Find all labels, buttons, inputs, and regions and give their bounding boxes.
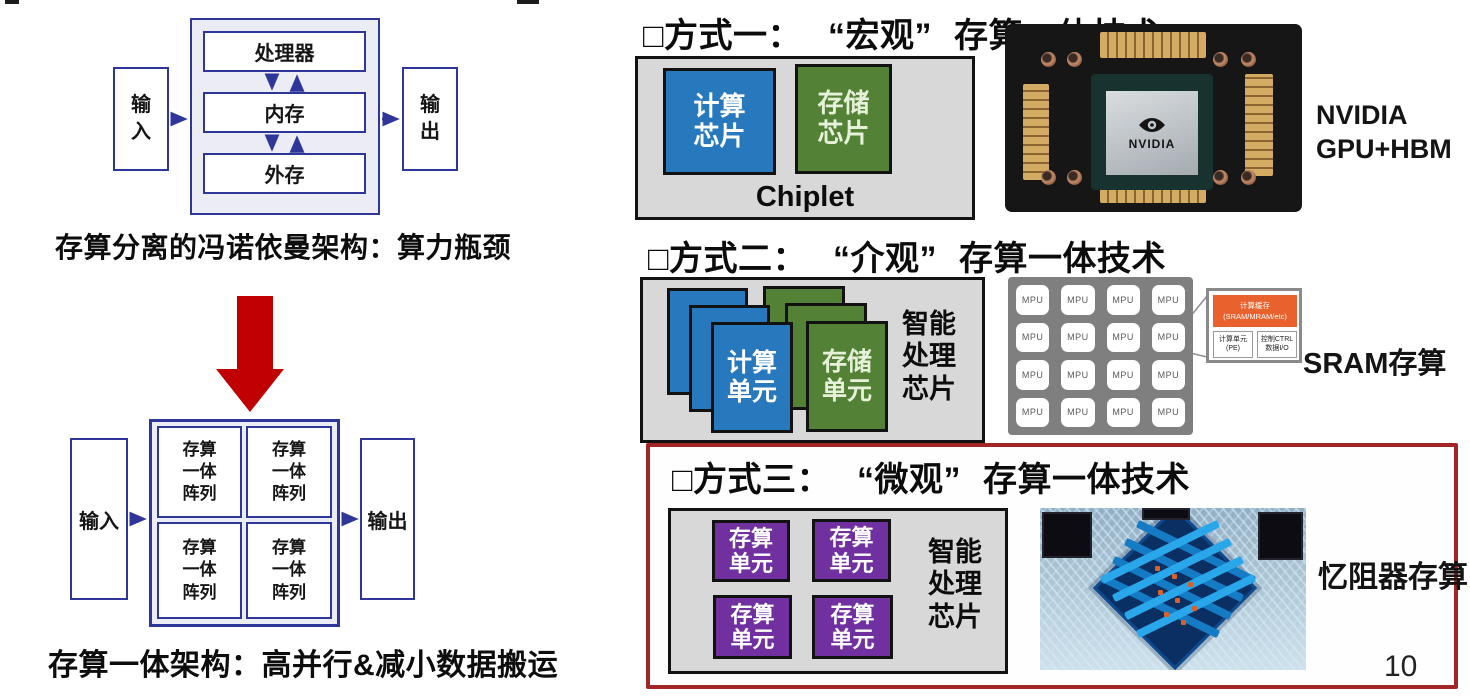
memristor-cell xyxy=(1155,566,1160,571)
mpu-cell: MPU xyxy=(1107,360,1140,390)
nvidia-gpu-photo: NVIDIA xyxy=(1005,24,1302,212)
memristor-label: 忆阻器存算 xyxy=(1318,552,1468,596)
processor-box: 处理器 xyxy=(203,31,366,72)
memory-chip-box: 存储 芯片 xyxy=(795,64,892,174)
mpu-cell: MPU xyxy=(1061,323,1094,353)
section1-bullet-label: □方式一： xyxy=(643,17,802,55)
memristor-cell xyxy=(1192,606,1197,611)
section1-scale: “宏观” xyxy=(828,17,932,55)
section2-tech: 存算一体技术 xyxy=(959,240,1166,278)
memristor-cell xyxy=(1175,598,1180,603)
mpu-callout: 计算缓存 (SRAM/MRAM/etc) 计算单元 (PE) 控制CTRL 数据… xyxy=(1206,288,1302,363)
section2-scale: “介观” xyxy=(833,240,937,278)
section2-bullet-label: □方式二： xyxy=(648,240,807,278)
mounting-hole xyxy=(1041,170,1056,185)
mounting-hole xyxy=(1041,52,1056,67)
mounting-hole xyxy=(1067,170,1082,185)
smart-chip-label-3: 智能 处理 芯片 xyxy=(928,536,982,633)
cim-caption: 存算一体架构：高并行&减小数据搬运 xyxy=(48,640,558,684)
mounting-hole xyxy=(1067,52,1082,67)
gpu-die: NVIDIA xyxy=(1106,91,1198,175)
cim-unit-box: 存算 单元 xyxy=(712,520,790,582)
sram-label: SRAM存算 xyxy=(1303,340,1446,382)
mounting-hole xyxy=(1241,52,1256,67)
chiplet-label: Chiplet xyxy=(635,181,975,214)
memristor-photo xyxy=(1040,508,1306,670)
mpu-cell: MPU xyxy=(1107,285,1140,315)
cim-input-box: 输入 xyxy=(70,438,128,600)
gold-connector xyxy=(1245,74,1273,176)
smart-chip-label-2: 智能 处理 芯片 xyxy=(902,308,956,405)
memristor-cell xyxy=(1158,590,1163,595)
memory-box: 内存 xyxy=(203,92,366,133)
cim-unit-box: 存算 单元 xyxy=(713,595,792,659)
mpu-cell: MPU xyxy=(1016,398,1049,428)
cim-output-box: 输出 xyxy=(360,438,415,600)
section3-heading: □方式三：“微观”存算一体技术 xyxy=(672,452,1190,501)
nvidia-logo-word: NVIDIA xyxy=(1129,137,1176,151)
gold-connector xyxy=(1100,32,1206,58)
mpu-cell: MPU xyxy=(1152,285,1185,315)
cim-array-box: 存算 一体 阵列 xyxy=(157,522,242,619)
mpu-cell: MPU xyxy=(1152,398,1185,428)
mpu-cell: MPU xyxy=(1107,398,1140,428)
callout-ctrl-box: 控制CTRL 数据I/O xyxy=(1257,331,1297,358)
mounting-hole xyxy=(1213,52,1228,67)
mpu-cell: MPU xyxy=(1061,285,1094,315)
red-transform-arrow xyxy=(216,296,284,412)
crop-fragment xyxy=(5,0,19,4)
memristor-cell xyxy=(1181,620,1186,625)
cim-array-box: 存算 一体 阵列 xyxy=(246,522,332,619)
mpu-cell: MPU xyxy=(1107,323,1140,353)
output-box: 输 出 xyxy=(402,67,458,171)
gpu-label-line2: GPU+HBM xyxy=(1316,134,1452,165)
mpu-cell: MPU xyxy=(1061,360,1094,390)
section3-scale: “微观” xyxy=(857,461,961,499)
compute-unit-card: 计算 单元 xyxy=(711,322,793,433)
memristor-cell xyxy=(1172,574,1177,579)
page-number: 10 xyxy=(1384,650,1417,684)
memory-unit-card: 存储 单元 xyxy=(806,321,888,432)
callout-cache-box: 计算缓存 (SRAM/MRAM/etc) xyxy=(1213,295,1297,327)
slide: { "page": { "number": "10" }, "colors": … xyxy=(0,0,1470,696)
nvidia-eye-icon xyxy=(1136,115,1168,135)
external-storage-box: 外存 xyxy=(203,153,366,194)
mpu-grid: MPU MPU MPU MPU MPU MPU MPU MPU MPU MPU … xyxy=(1008,277,1193,435)
corner-chip xyxy=(1042,512,1092,558)
von-neumann-caption: 存算分离的冯诺依曼架构：算力瓶颈 xyxy=(55,226,511,266)
mpu-cell: MPU xyxy=(1016,285,1049,315)
mounting-hole xyxy=(1241,170,1256,185)
mpu-cell: MPU xyxy=(1152,323,1185,353)
mpu-cell: MPU xyxy=(1061,398,1094,428)
mpu-cell: MPU xyxy=(1016,323,1049,353)
crop-fragment xyxy=(517,0,539,4)
gpu-label-line1: NVIDIA xyxy=(1316,100,1408,131)
memristor-cell xyxy=(1188,582,1193,587)
cim-unit-box: 存算 单元 xyxy=(812,595,893,659)
section3-bullet-label: □方式三： xyxy=(672,461,831,499)
section3-tech: 存算一体技术 xyxy=(983,461,1190,499)
callout-pe-box: 计算单元 (PE) xyxy=(1213,331,1253,358)
section2-heading: □方式二：“介观”存算一体技术 xyxy=(648,231,1166,280)
cim-unit-box: 存算 单元 xyxy=(812,519,891,582)
compute-chip-box: 计算 芯片 xyxy=(663,68,776,175)
cim-array-box: 存算 一体 阵列 xyxy=(246,426,332,518)
memristor-cell xyxy=(1164,612,1169,617)
gold-connector xyxy=(1023,84,1049,180)
mounting-hole xyxy=(1213,170,1228,185)
corner-chip xyxy=(1142,508,1190,520)
mpu-cell: MPU xyxy=(1016,360,1049,390)
corner-chip xyxy=(1258,512,1303,560)
mpu-cell: MPU xyxy=(1152,360,1185,390)
cim-array-box: 存算 一体 阵列 xyxy=(157,426,242,518)
input-box: 输 入 xyxy=(113,67,169,171)
